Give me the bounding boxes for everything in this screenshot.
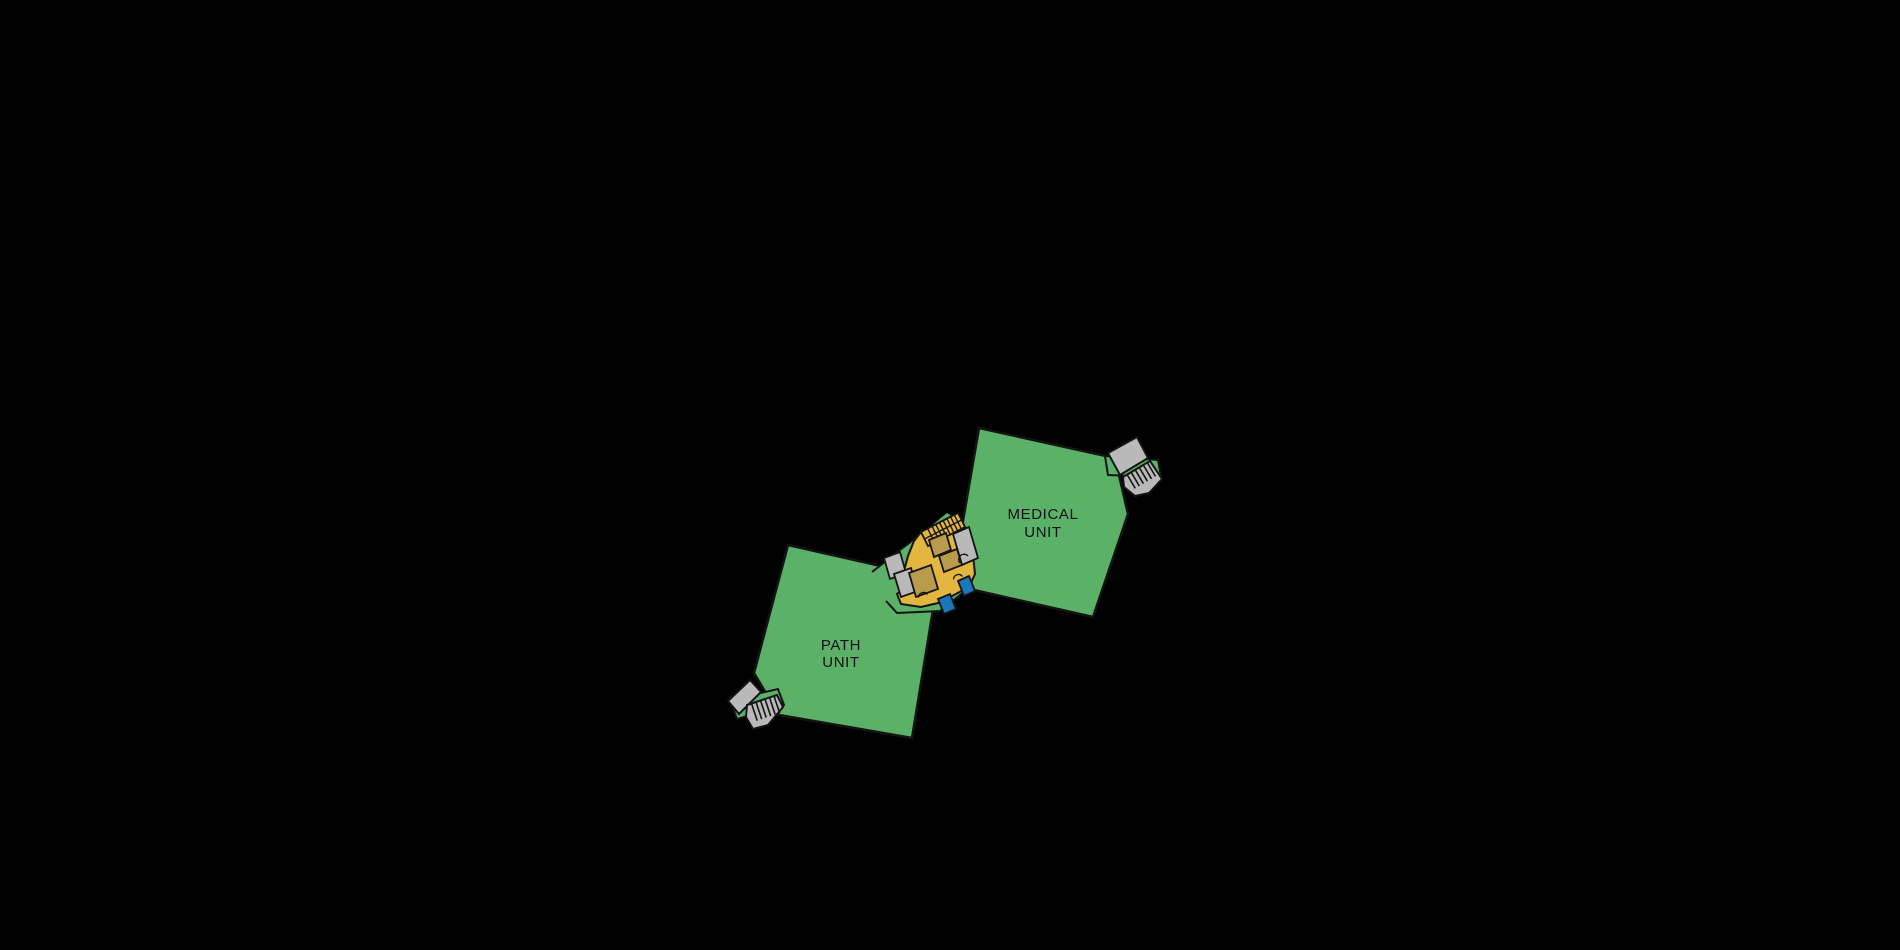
map-background [0,0,1900,950]
medical-unit-label-line1: MEDICAL [1008,506,1079,523]
floorplan-svg: MEDICAL UNIT PATH UNIT [0,0,1900,950]
path-unit-label-line1: PATH [821,637,861,654]
floorplan-canvas: MEDICAL UNIT PATH UNIT [0,0,1900,950]
medical-unit-label-line2: UNIT [1024,524,1061,541]
path-unit-label-line2: UNIT [822,654,859,671]
